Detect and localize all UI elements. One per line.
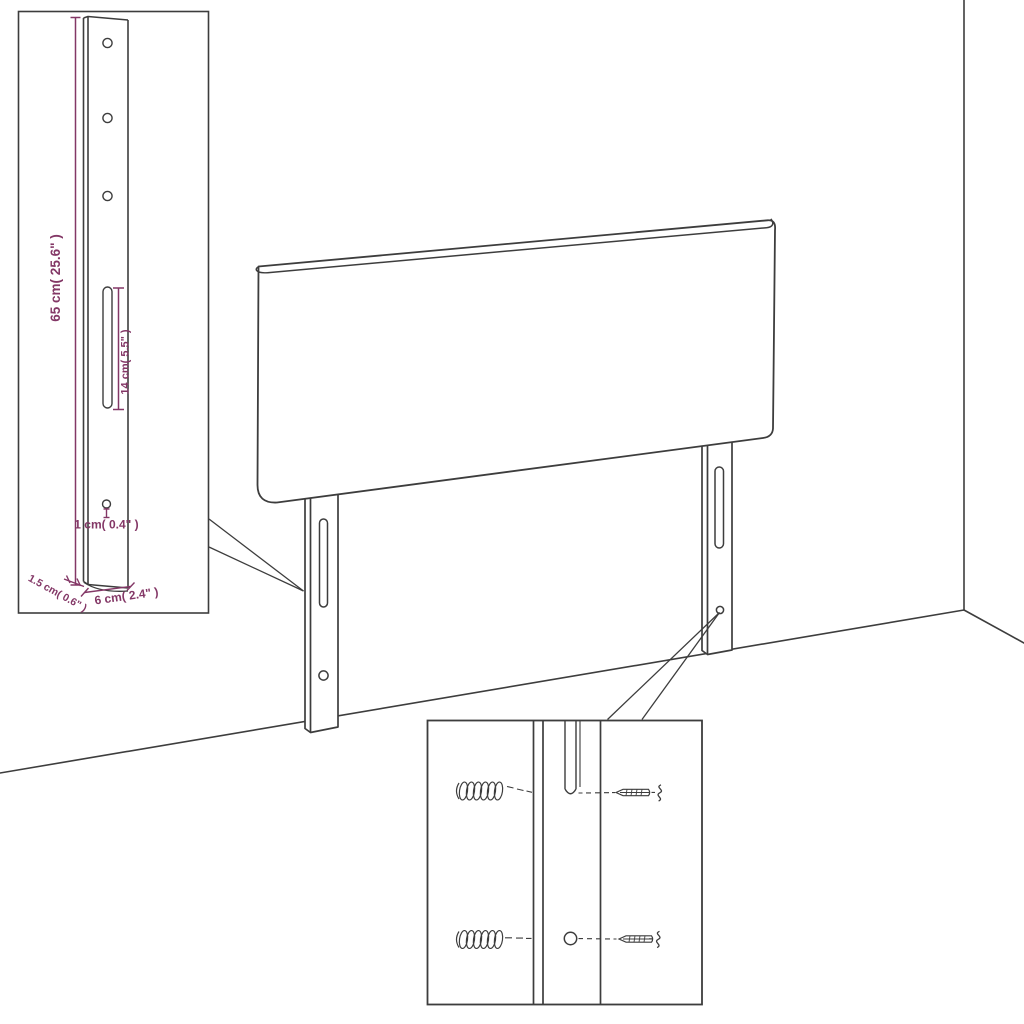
headboard-panel xyxy=(256,219,775,503)
floor-line-right xyxy=(964,610,1024,643)
leg-hole xyxy=(319,671,328,680)
headboard-dimension-diagram: 65 cm( 25.6" ) 14 cm( 5.5" ) 1 cm( 0.4" … xyxy=(0,0,1024,1024)
leg-height-label: 65 cm( 25.6" ) xyxy=(48,234,63,321)
callout-leader-lines-right xyxy=(608,613,720,720)
hole-diameter-label: 1 cm( 0.4" ) xyxy=(74,518,138,532)
headboard-leg-left xyxy=(305,465,338,733)
headboard-leg-right xyxy=(702,420,732,655)
callout-leader-lines-left xyxy=(209,519,304,591)
panel-outline xyxy=(258,220,776,502)
leg-slot xyxy=(715,467,724,548)
slot-length-label: 14 cm( 5.5" ) xyxy=(120,329,132,394)
leg-slot xyxy=(320,519,328,607)
leg-hole xyxy=(716,606,723,613)
leg-detail-inset: 65 cm( 25.6" ) 14 cm( 5.5" ) 1 cm( 0.4" … xyxy=(19,12,209,615)
mounting-detail-inset xyxy=(428,721,703,1005)
